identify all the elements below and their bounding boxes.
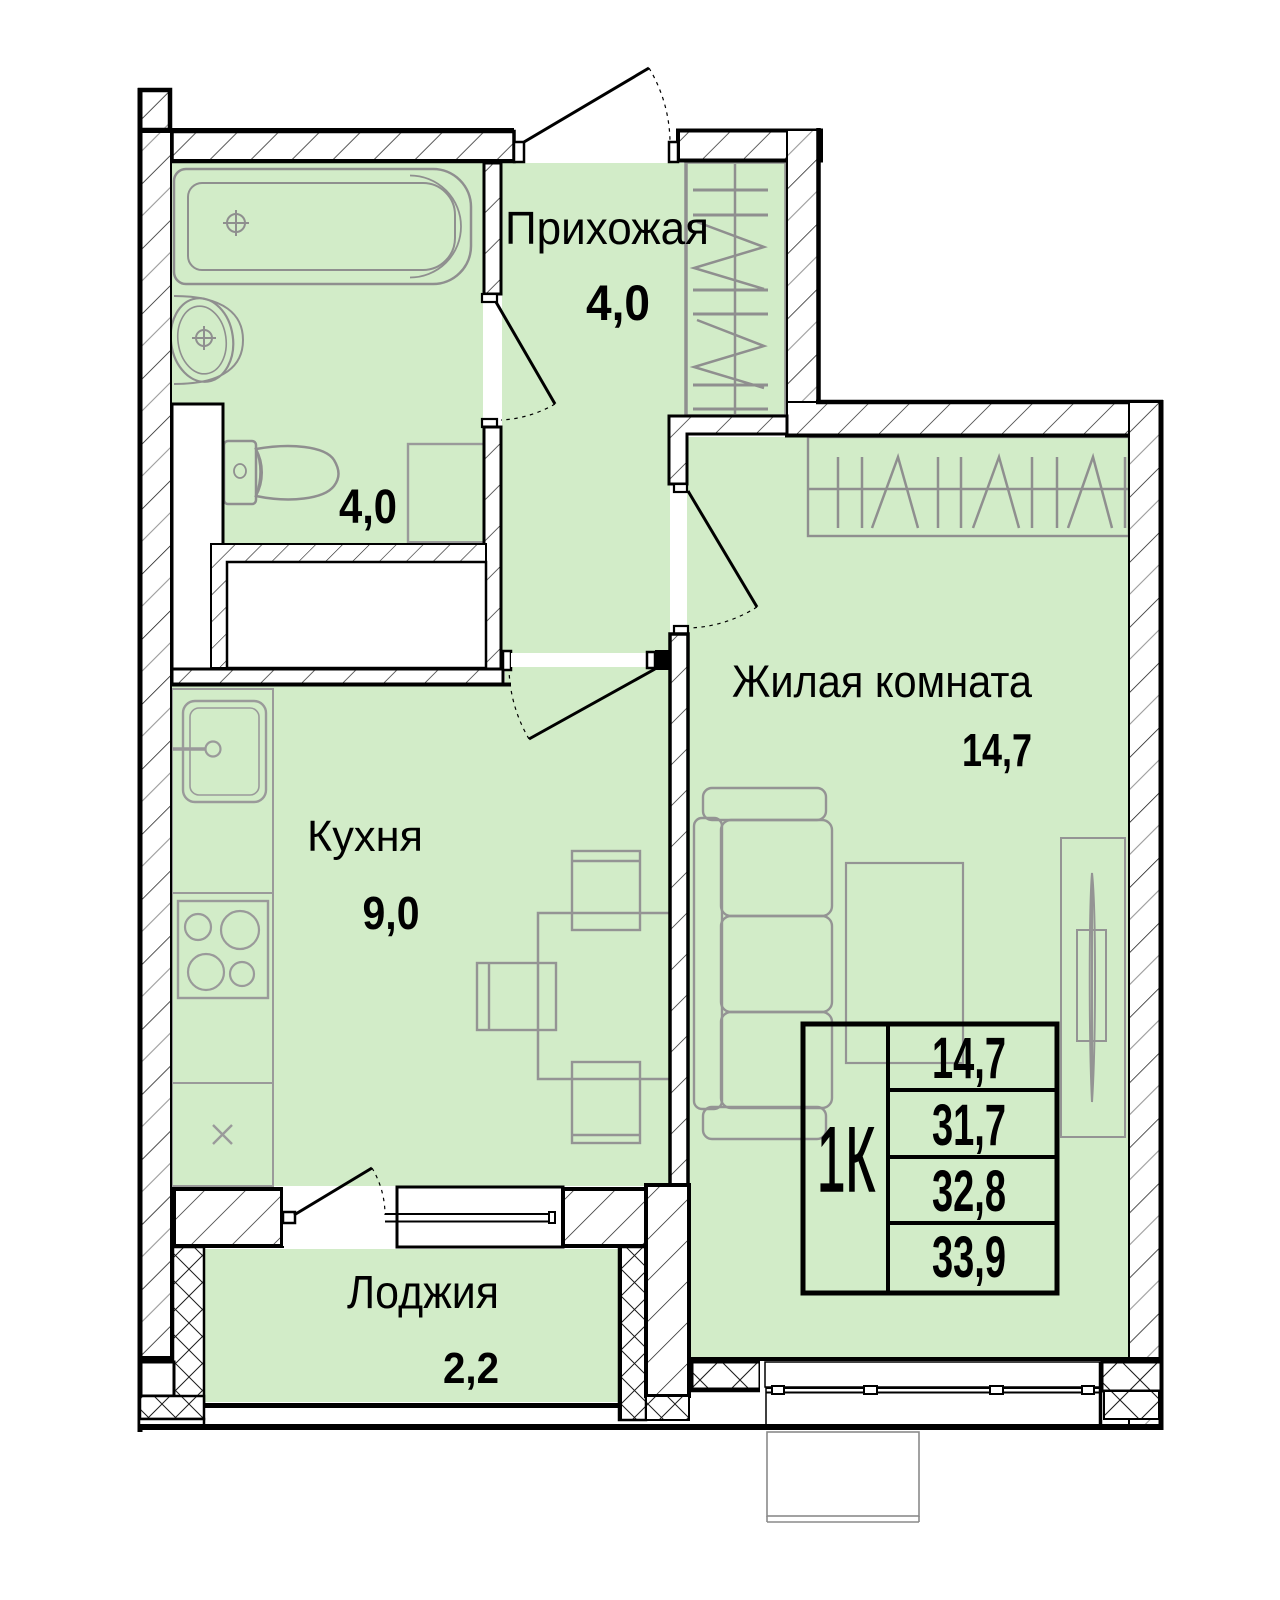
svg-text:Жилая комната: Жилая комната	[732, 656, 1033, 707]
svg-text:2,2: 2,2	[443, 1344, 499, 1393]
svg-text:14,7: 14,7	[962, 724, 1032, 776]
svg-text:9,0: 9,0	[363, 887, 420, 939]
svg-text:Прихожая: Прихожая	[505, 202, 709, 254]
svg-text:33,9: 33,9	[932, 1225, 1006, 1290]
svg-text:14,7: 14,7	[932, 1026, 1006, 1091]
svg-text:1К: 1К	[817, 1109, 875, 1211]
svg-text:32,8: 32,8	[932, 1159, 1006, 1224]
svg-text:Кухня: Кухня	[307, 812, 423, 861]
svg-text:Лоджия: Лоджия	[347, 1266, 499, 1318]
svg-text:31,7: 31,7	[932, 1093, 1006, 1158]
svg-text:4,0: 4,0	[586, 275, 650, 331]
svg-text:4,0: 4,0	[339, 481, 397, 534]
